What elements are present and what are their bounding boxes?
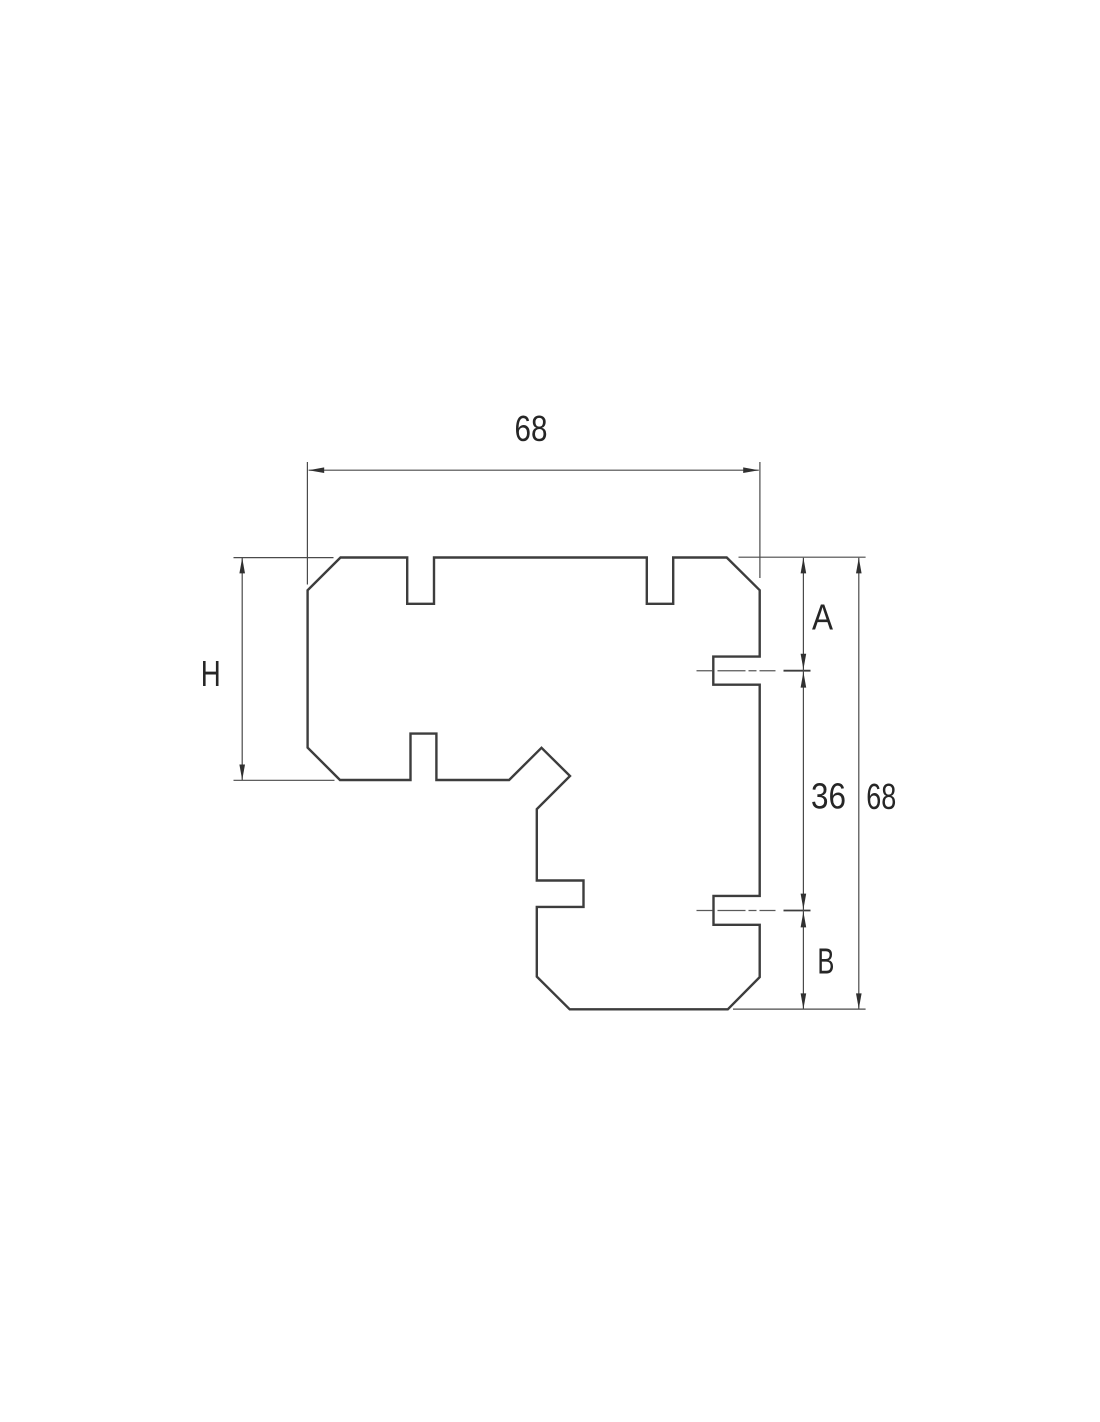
svg-text:B: B <box>817 941 834 982</box>
svg-text:A: A <box>812 596 834 637</box>
svg-text:68: 68 <box>515 408 548 449</box>
svg-text:36: 36 <box>811 776 846 817</box>
svg-text:H: H <box>201 653 221 694</box>
svg-text:68: 68 <box>866 776 896 817</box>
